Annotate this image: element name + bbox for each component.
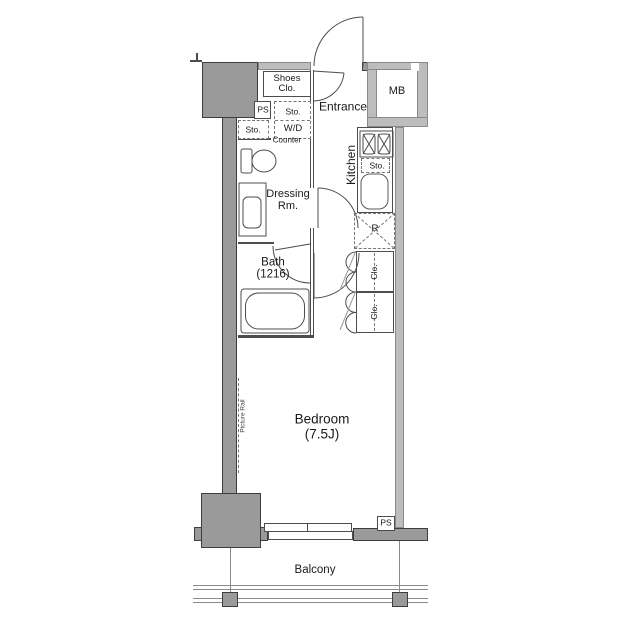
bath-label-line2: (1216) (256, 269, 289, 281)
column-notch-left (194, 527, 202, 541)
shoes-closet-label-line2: Clo. (274, 84, 301, 94)
bath-label-line1: Bath (256, 257, 289, 269)
wall-corridor-lower (310, 228, 314, 337)
railing-connector-right (399, 541, 400, 592)
wall-right (395, 127, 404, 528)
sliding-door-pane-2 (268, 531, 353, 540)
bedroom-door-swing (314, 253, 359, 298)
dressing-room-door-swing (318, 188, 358, 228)
railing-line-1 (193, 585, 428, 586)
mb-wall-notch (411, 63, 419, 71)
closet-upper-label: Clo. (369, 264, 379, 279)
wall-bath-bedroom (238, 335, 314, 338)
entrance-label: Entrance (319, 101, 367, 114)
railing-post-left (222, 592, 238, 607)
dressing-room-label-line2: Rm. (266, 201, 309, 213)
closet-bifold-doors (340, 252, 356, 333)
pipe-space-top-label: PS (257, 105, 268, 114)
bedroom-label-line2: (7.5J) (295, 427, 350, 442)
kitchen-label: Kitchen (344, 145, 358, 185)
meter-box-label: MB (389, 86, 406, 98)
closet-lower-label: Clo. (369, 304, 379, 319)
storage-top-label: Sto. (285, 107, 300, 116)
wall-dressing-bath (238, 242, 274, 244)
railing-line-2 (193, 589, 428, 590)
boundary-tick-v (196, 53, 198, 61)
railing-connector-left (230, 548, 231, 592)
sliding-door-tick (307, 524, 308, 532)
column-bottom-left (201, 493, 261, 548)
bedroom-label-line1: Bedroom (295, 412, 350, 427)
storage-kitchen-label: Sto. (369, 161, 384, 170)
entrance-door-swing (314, 17, 363, 66)
toilet (241, 149, 276, 173)
column-top-left (202, 62, 258, 118)
wall-left (222, 117, 237, 494)
shoes-top-wall (258, 62, 311, 70)
refrigerator-label: R (371, 225, 378, 236)
railing-post-right (392, 592, 408, 607)
counter-label: Counter (273, 137, 301, 146)
balcony-label: Balcony (295, 564, 336, 576)
bedroom-label: Bedroom (7.5J) (295, 412, 350, 441)
mb-wall-bottom (367, 117, 428, 127)
picture-rail-label: Picture Rail (240, 399, 247, 432)
shoes-closet-label: Shoes Clo. (274, 74, 301, 95)
floor-plan: Shoes Clo. Entrance MB PS Sto. W/D Sto. … (0, 0, 640, 639)
washer-dryer-divider (275, 120, 310, 121)
pipe-space-bottom-label: PS (380, 518, 391, 527)
bathtub (241, 289, 309, 333)
bath-label: Bath (1216) (256, 257, 289, 282)
storage-left-label: Sto. (245, 125, 260, 134)
washer-dryer-label: W/D (284, 124, 302, 134)
washbasin (239, 183, 266, 236)
dressing-room-label: Dressing Rm. (266, 189, 309, 213)
shoes-closet-door-swing (313, 71, 344, 101)
